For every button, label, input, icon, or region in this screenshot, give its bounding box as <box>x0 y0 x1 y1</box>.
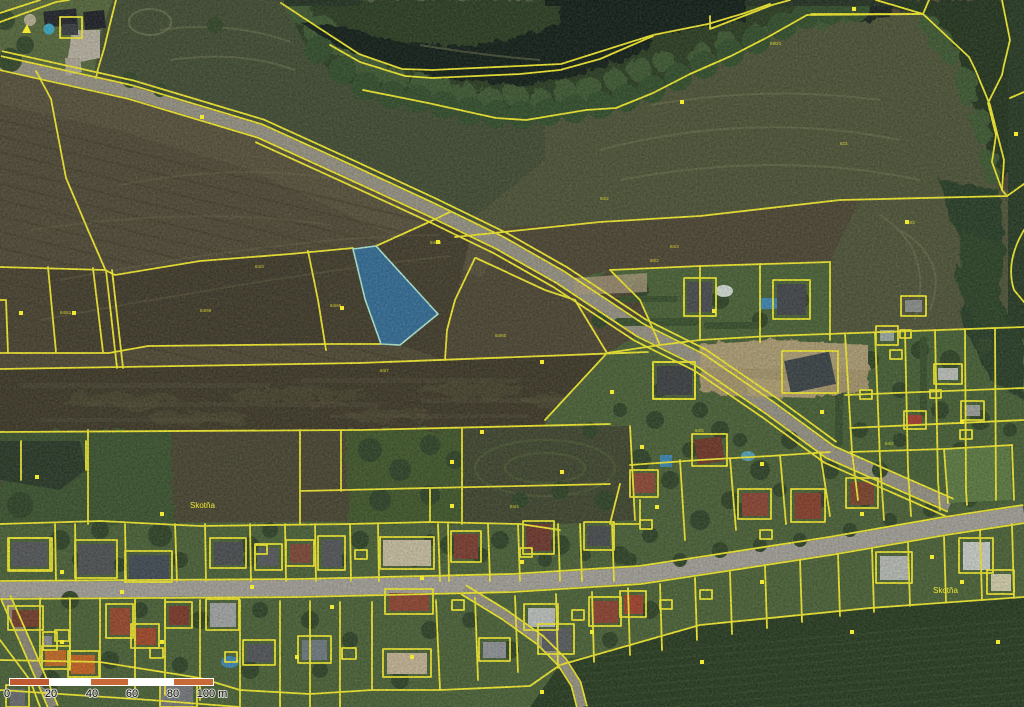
svg-text:84/60: 84/60 <box>495 333 507 338</box>
svg-text:84/66: 84/66 <box>330 303 342 308</box>
svg-text:0: 0 <box>4 688 10 700</box>
svg-text:100 m: 100 m <box>197 688 228 700</box>
svg-text:84/61: 84/61 <box>60 310 72 315</box>
svg-text:84/69: 84/69 <box>200 308 212 313</box>
svg-text:623: 623 <box>840 141 848 146</box>
svg-text:Skotňa: Skotňa <box>933 586 958 595</box>
svg-text:84/3: 84/3 <box>670 244 679 249</box>
svg-text:80/2: 80/2 <box>650 258 659 263</box>
svg-text:84/3: 84/3 <box>906 220 915 225</box>
svg-text:84/4: 84/4 <box>510 504 519 509</box>
svg-text:84/64: 84/64 <box>430 240 442 245</box>
svg-text:680/1: 680/1 <box>770 41 782 46</box>
svg-text:Skotňa: Skotňa <box>190 501 215 510</box>
svg-text:20: 20 <box>45 688 57 700</box>
svg-text:60: 60 <box>126 688 138 700</box>
svg-text:84/7: 84/7 <box>380 368 389 373</box>
svg-text:40: 40 <box>86 688 98 700</box>
svg-text:84/2: 84/2 <box>600 196 609 201</box>
svg-text:80: 80 <box>167 688 179 700</box>
svg-text:84/3: 84/3 <box>255 264 264 269</box>
svg-text:84/2: 84/2 <box>885 441 894 446</box>
svg-text:84/5: 84/5 <box>695 428 704 433</box>
